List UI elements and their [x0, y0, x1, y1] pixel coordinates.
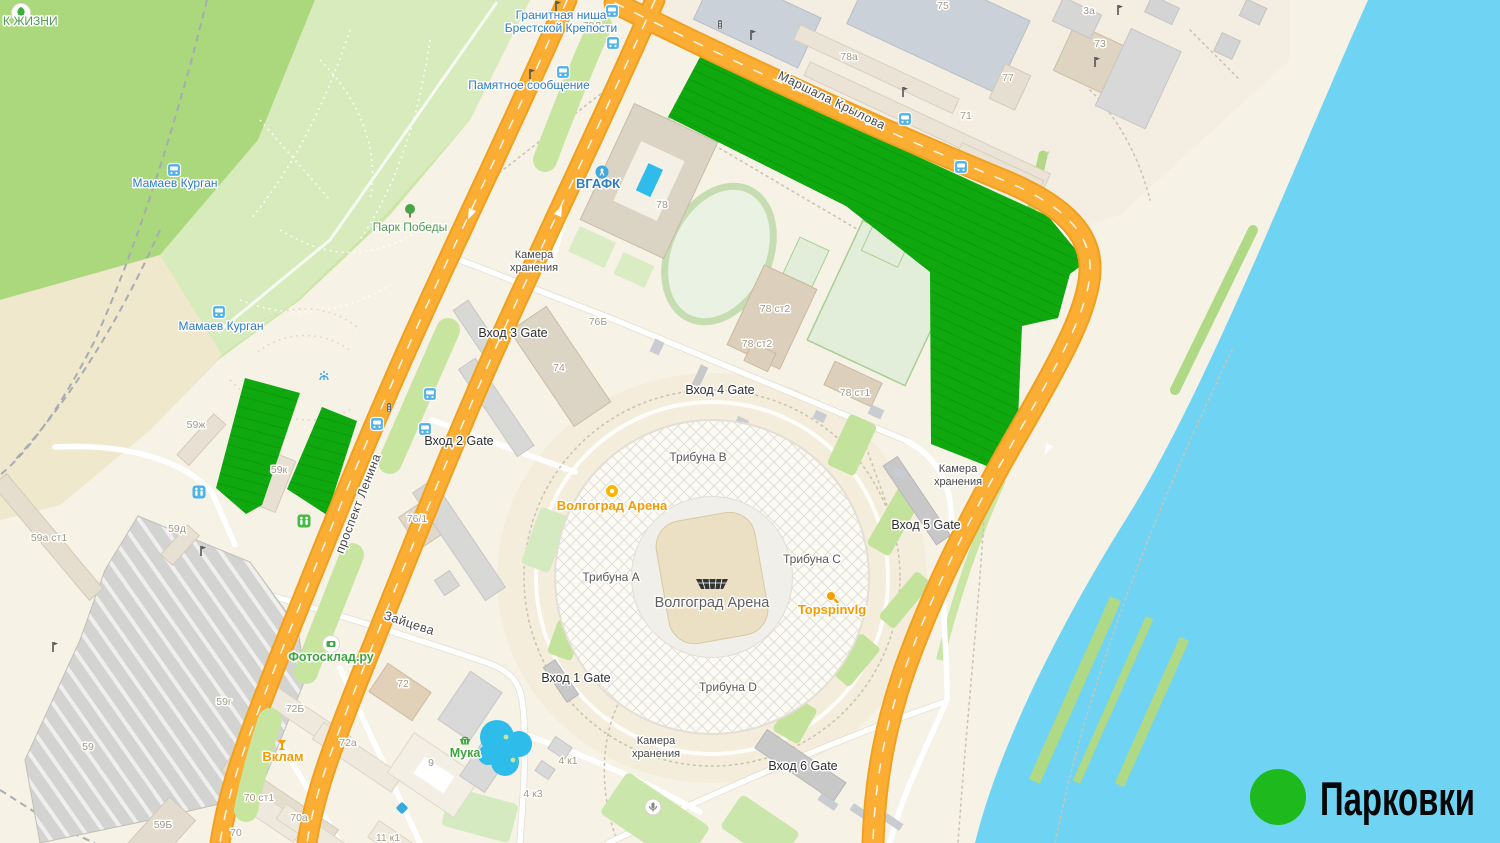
building-label: 76Б	[589, 316, 608, 328]
building-label: 3а	[1083, 5, 1095, 17]
map-svg: 7578а7177733а78Л787476Б76/178 ст278 ст27…	[0, 0, 1500, 843]
building-label: 11 к1	[376, 832, 400, 843]
poi-pamyatnoe[interactable]: Памятное сообщение	[468, 78, 590, 92]
traffic-light-icon	[387, 403, 391, 412]
arena-poi-icon[interactable]	[606, 485, 619, 498]
poi-vklam[interactable]: Вклам	[262, 749, 303, 764]
storage-label: Камерахранения	[632, 735, 680, 760]
building-label: 4 к3	[523, 788, 542, 800]
poi-muka[interactable]: Мука	[450, 746, 482, 760]
building-label: 59д	[168, 523, 186, 535]
gate-label: Вход 3 Gate	[478, 326, 547, 340]
building-label: 78 ст2	[760, 303, 791, 315]
gate-label: Вход 2 Gate	[424, 434, 493, 448]
building-label: 59а ст1	[31, 532, 67, 544]
building-label: 78 ст2	[742, 338, 773, 350]
storage-label: Камерахранения	[510, 249, 558, 274]
poi-vgafk[interactable]: ВГАФК	[576, 176, 620, 191]
poi-mamaev-kurgan-2[interactable]: Мамаев Курган	[178, 319, 263, 333]
building-label: 70а	[290, 812, 308, 824]
legend: Парковки	[1250, 769, 1475, 825]
poi-park-zhizni[interactable]: К ЖИЗНИ	[3, 14, 58, 28]
stand-label: Трибуна D	[699, 680, 757, 694]
building-label: 59ж	[187, 419, 206, 431]
poi-mamaev-kurgan-1[interactable]: Мамаев Курган	[132, 176, 217, 190]
bus-stop-icon[interactable]	[955, 161, 968, 174]
bus-stop-icon[interactable]	[899, 113, 912, 126]
bus-stop-icon[interactable]	[607, 37, 620, 50]
poi-granit-line2[interactable]: Брестской Крепости	[505, 21, 617, 35]
building-label: 59г	[216, 696, 232, 708]
bus-stop-icon[interactable]	[557, 66, 570, 79]
poi-arena[interactable]: Волгоград Арена	[557, 498, 668, 513]
building-label: 72а	[339, 737, 357, 749]
bus-stop-icon[interactable]	[424, 388, 437, 401]
poi-park-pobedy[interactable]: Парк Победы	[373, 220, 448, 234]
stadium-icon	[696, 579, 728, 589]
building-label: 78 ст1	[840, 387, 871, 399]
building-label: 78	[656, 199, 668, 211]
legend-label: Парковки	[1320, 772, 1475, 825]
building-label: 59	[82, 741, 94, 753]
wc-green-icon[interactable]	[298, 515, 311, 528]
building-label: 74	[553, 362, 565, 374]
building-label: 72Б	[286, 703, 305, 715]
gate-label: Вход 6 Gate	[768, 759, 837, 773]
building-label: 59к	[271, 464, 288, 476]
poi-topspin[interactable]: Topspinvlg	[798, 602, 866, 617]
building-label: 59Б	[154, 819, 173, 831]
building-label: 4 к1	[558, 755, 577, 767]
traffic-light-icon	[718, 20, 722, 29]
map-canvas[interactable]: 7578а7177733а78Л787476Б76/178 ст278 ст27…	[0, 0, 1500, 843]
bus-stop-icon[interactable]	[213, 306, 226, 319]
wc-icon[interactable]	[193, 486, 206, 499]
microphone-icon[interactable]	[645, 799, 661, 815]
stand-label: Трибуна B	[669, 450, 726, 464]
storage-label: Камерахранения	[934, 463, 982, 488]
gate-label: Вход 5 Gate	[891, 518, 960, 532]
stadium-label: Волгоград Арена	[655, 595, 771, 611]
building-label: 77	[1002, 72, 1014, 84]
building-label: 70	[230, 827, 242, 839]
stand-label: Трибуна A	[582, 570, 639, 584]
bus-stop-icon[interactable]	[371, 418, 384, 431]
legend-swatch	[1250, 769, 1306, 825]
building-label: 70 ст1	[244, 792, 275, 804]
building-label: 78а	[840, 51, 858, 63]
building-label: 76/1	[407, 513, 428, 525]
building-label: 9	[428, 757, 434, 769]
bus-stop-icon[interactable]	[168, 164, 181, 177]
gate-label: Вход 4 Gate	[685, 383, 754, 397]
poi-fotosklad[interactable]: Фотосклад.ру	[288, 650, 374, 664]
building-label: 75	[937, 0, 949, 12]
gate-label: Вход 1 Gate	[541, 671, 610, 685]
building-label: 73	[1094, 38, 1106, 50]
building-label: 72	[397, 678, 409, 690]
poi-granit-line1[interactable]: Гранитная ниша	[516, 8, 607, 22]
stand-label: Трибуна C	[783, 552, 841, 566]
building-label: 71	[960, 110, 972, 122]
bus-stop-icon[interactable]	[606, 5, 619, 18]
